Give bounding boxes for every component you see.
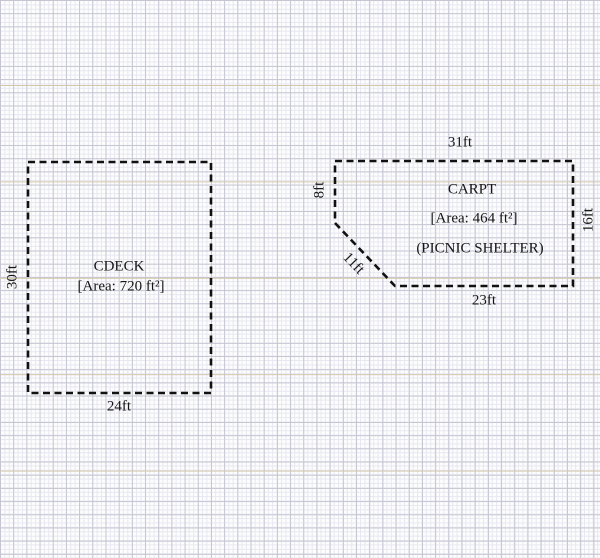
graph-paper: CDECK [Area: 720 ft²] 30ft 24ft CARPT [A… — [0, 0, 600, 558]
carpt-area-label: [Area: 464 ft²] — [431, 210, 518, 227]
carpt-name-label: CARPT — [448, 181, 496, 198]
cdeck-dim-bottom-label: 24ft — [107, 398, 131, 415]
cdeck-name-label: CDECK — [94, 258, 145, 275]
carpt-dim-top-label: 31ft — [448, 134, 472, 151]
carpt-note-label: (PICNIC SHELTER) — [416, 240, 543, 257]
carpt-dim-left-label: 8ft — [311, 182, 328, 199]
carpt-dim-bottom-label: 23ft — [472, 292, 496, 309]
carpt-dim-right-label: 16ft — [580, 208, 597, 232]
cdeck-dim-left-label: 30ft — [4, 265, 21, 289]
cdeck-area-label: [Area: 720 ft²] — [78, 278, 165, 295]
